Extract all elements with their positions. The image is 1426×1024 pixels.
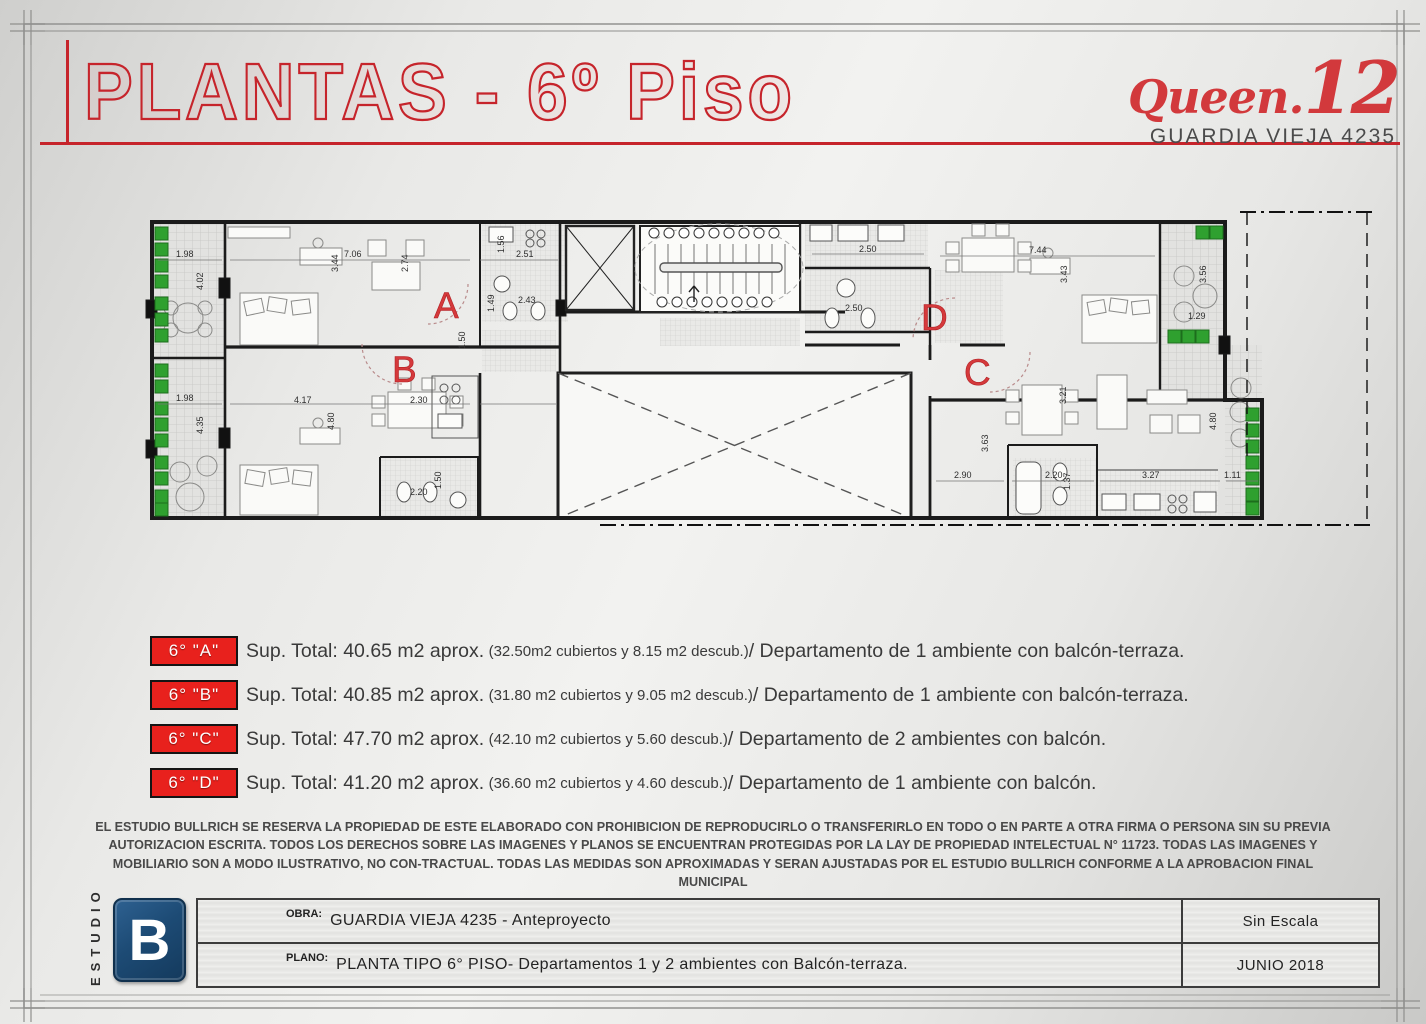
legend: 6° "A" Sup. Total: 40.65 m2 aprox. (32.5… (150, 637, 1189, 813)
staircase (635, 224, 803, 312)
dim-label: 4.17 (294, 395, 312, 405)
dim-label: 1.98 (176, 393, 194, 403)
dim-label: 4.35 (195, 416, 205, 434)
unit-label-b: B (392, 349, 417, 390)
unit-label-c: C (964, 352, 991, 393)
brand-number: 12 (1304, 45, 1398, 130)
unit-label-d: D (921, 297, 948, 338)
dim-label: 1.50 (433, 471, 443, 489)
legend-row-c: 6° "C" Sup. Total: 47.70 m2 aprox. (42.1… (150, 725, 1189, 753)
dim-label: 2.20 (1045, 470, 1063, 480)
dim-label: 2.20 (410, 487, 428, 497)
legend-row-a: 6° "A" Sup. Total: 40.65 m2 aprox. (32.5… (150, 637, 1189, 665)
legend-desc-b: / Departamento de 1 ambiente con balcón-… (753, 684, 1189, 707)
legend-tag-c: 6° "C" (150, 724, 238, 754)
dim-label: 1.37 (1062, 472, 1072, 490)
legend-desc-c: / Departamento de 2 ambientes con balcón… (728, 728, 1106, 751)
plano-value: PLANTA TIPO 6° PISO- Departamentos 1 y 2… (336, 956, 908, 974)
obra-label: OBRA: (286, 908, 322, 920)
obra-value: GUARDIA VIEJA 4235 - Anteproyecto (330, 912, 611, 930)
brand-name: Queen. (1128, 70, 1304, 124)
legend-sup-b: Sup. Total: 40.85 m2 aprox. (246, 684, 484, 707)
floor-plan: A B C D 1.98 4.02 7.06 3.44 2.74 1.56 2.… (140, 195, 1385, 550)
dim-label: 1.50 (457, 331, 467, 349)
central-void (558, 373, 911, 518)
dim-label: 3.43 (1059, 265, 1069, 283)
legend-sub-d: (36.60 m2 cubiertos y 4.60 descub.) (489, 775, 728, 792)
title-block-row-plano: PLANO: PLANTA TIPO 6° PISO- Departamento… (198, 942, 1378, 986)
dim-label: 4.80 (326, 412, 336, 430)
dim-label: 3.27 (1142, 470, 1160, 480)
brand-address: GUARDIA VIEJA 4235 (1128, 126, 1396, 147)
dim-label: 3.63 (980, 434, 990, 452)
legend-row-b: 6° "B" Sup. Total: 40.85 m2 aprox. (31.8… (150, 681, 1189, 709)
dim-label: 1.11 (1224, 470, 1241, 480)
legend-tag-d: 6° "D" (150, 768, 238, 798)
legend-tag-b: 6° "B" (150, 680, 238, 710)
plano-cell: PLANO: PLANTA TIPO 6° PISO- Departamento… (198, 944, 1181, 986)
legend-sub-b: (31.80 m2 cubiertos y 9.05 m2 descub.) (489, 687, 753, 704)
header-red-vertical-rule (66, 40, 69, 144)
dim-label: 2.51 (516, 249, 534, 259)
dim-label: 3.21 (1058, 386, 1068, 404)
legend-desc-a: / Departamento de 1 ambiente con balcón-… (749, 640, 1185, 663)
dim-label: 1.98 (176, 249, 194, 259)
dim-label: 3.56 (1198, 265, 1208, 283)
dim-label: 7.06 (344, 249, 362, 259)
legend-sup-c: Sup. Total: 47.70 m2 aprox. (246, 728, 484, 751)
legend-sup-d: Sup. Total: 41.20 m2 aprox. (246, 772, 484, 795)
dim-label: 2.90 (954, 470, 972, 480)
brand-logo: Queen.12 GUARDIA VIEJA 4235 (1128, 52, 1396, 147)
studio-vertical-label: ESTUDIO (88, 896, 103, 986)
legend-desc-d: / Departamento de 1 ambiente con balcón. (728, 772, 1097, 795)
legend-tag-a: 6° "A" (150, 636, 238, 666)
legend-sup-a: Sup. Total: 40.65 m2 aprox. (246, 640, 484, 663)
dim-label: 1.49 (486, 294, 496, 312)
legend-sub-a: (32.50m2 cubiertos y 8.15 m2 descub.) (489, 643, 749, 660)
page-title: PLANTAS - 6º Piso (84, 46, 796, 139)
unit-label-a: A (434, 285, 459, 326)
obra-cell: OBRA: GUARDIA VIEJA 4235 - Anteproyecto (198, 900, 1181, 942)
legend-sub-c: (42.10 m2 cubiertos y 5.60 descub.) (489, 731, 728, 748)
dim-label: 1.29 (1188, 311, 1206, 321)
disclaimer-text: EL ESTUDIO BULLRICH SE RESERVA LA PROPIE… (77, 818, 1349, 891)
dim-label: 2.43 (518, 295, 536, 305)
plano-label: PLANO: (286, 952, 328, 964)
title-block: OBRA: GUARDIA VIEJA 4235 - Anteproyecto … (196, 898, 1380, 988)
dim-label: 2.50 (859, 244, 877, 254)
date-cell: JUNIO 2018 (1181, 944, 1378, 986)
dim-label: 4.02 (195, 272, 205, 290)
dim-label: 2.30 (410, 395, 428, 405)
title-block-row-obra: OBRA: GUARDIA VIEJA 4235 - Anteproyecto … (198, 900, 1378, 942)
elevator (566, 226, 634, 310)
studio-b-logo: B (113, 898, 186, 982)
legend-row-d: 6° "D" Sup. Total: 41.20 m2 aprox. (36.6… (150, 769, 1189, 797)
dim-label: 2.74 (400, 254, 410, 272)
dim-label: 7.44 (1029, 245, 1047, 255)
dim-label: 1.56 (496, 235, 506, 253)
dim-label: 2.50 (845, 303, 863, 313)
dim-label: 4.80 (1208, 412, 1218, 430)
scale-cell: Sin Escala (1181, 900, 1378, 942)
dim-label: 3.44 (330, 254, 340, 272)
